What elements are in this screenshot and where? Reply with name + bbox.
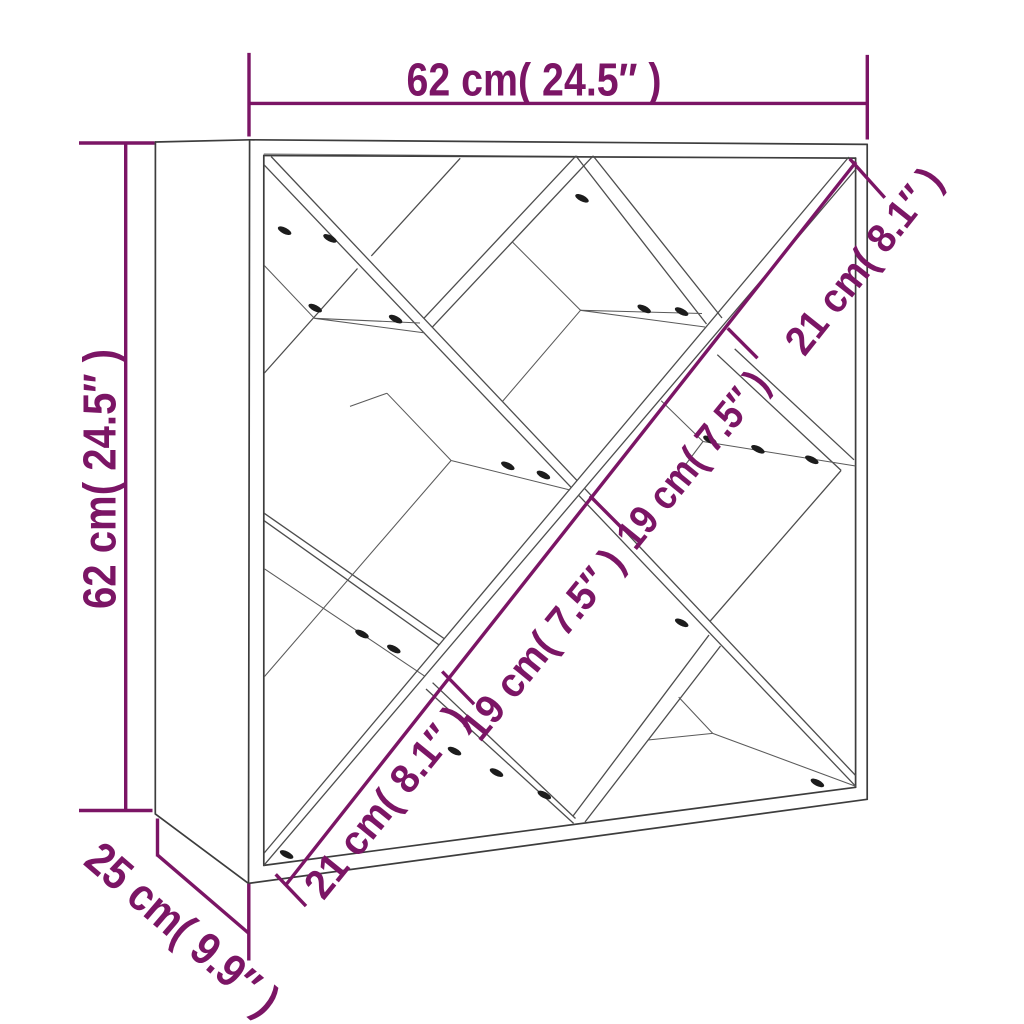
svg-text:62 cm( 24.5″ ): 62 cm( 24.5″ ) [407,54,662,106]
svg-text:62 cm( 24.5″ ): 62 cm( 24.5″ ) [74,349,126,609]
